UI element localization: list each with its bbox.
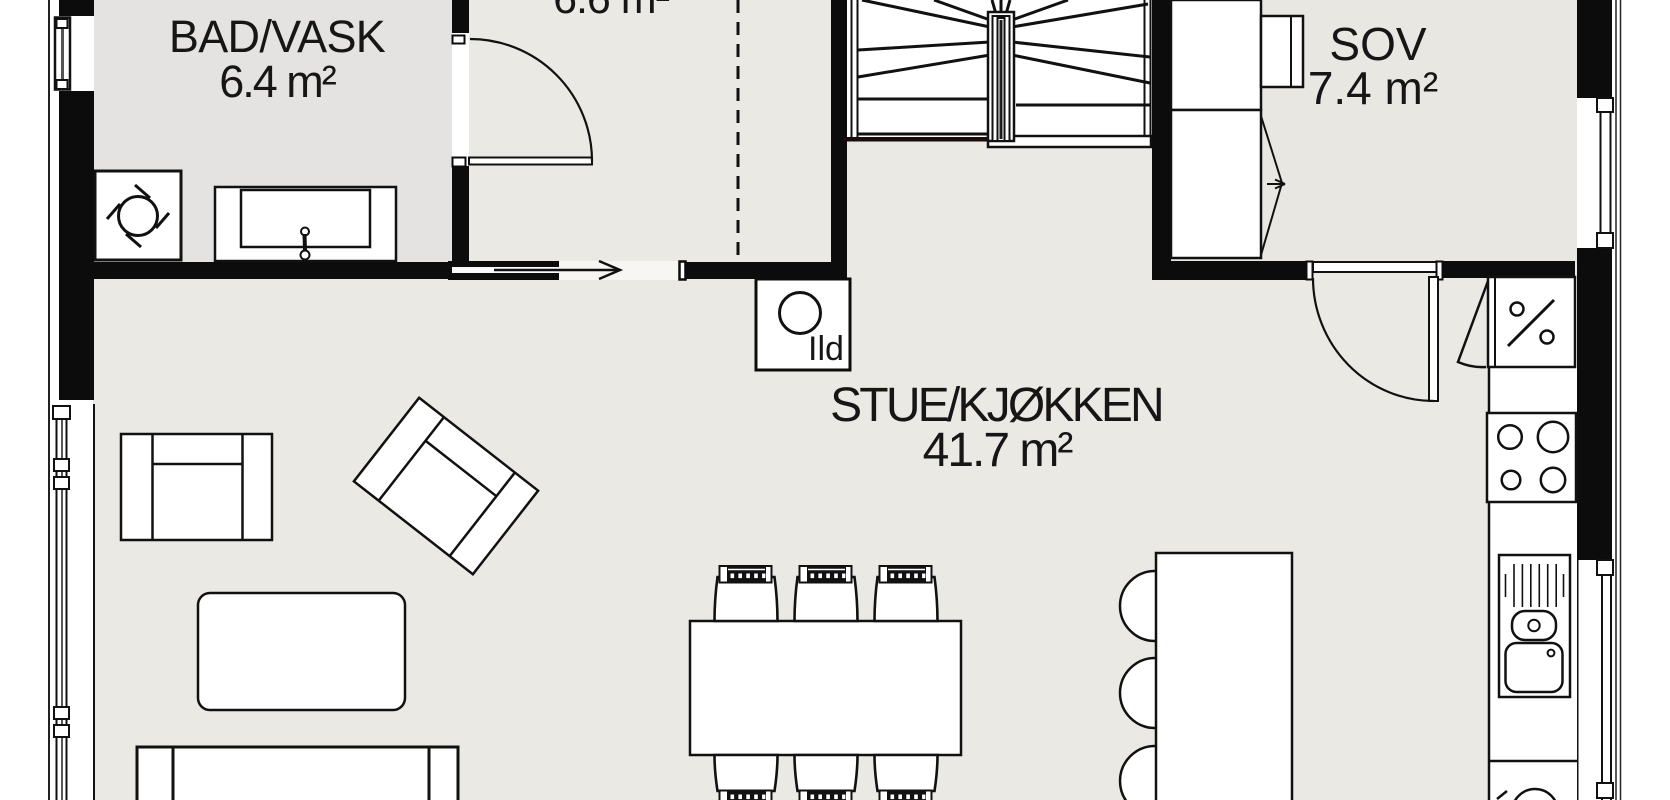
- svg-text:41.7 m²: 41.7 m²: [923, 424, 1074, 477]
- svg-text:6.4 m²: 6.4 m²: [219, 56, 337, 107]
- svg-text:7.4 m²: 7.4 m²: [1308, 62, 1438, 114]
- svg-text:BAD/VASK: BAD/VASK: [169, 11, 386, 62]
- svg-text:Ild: Ild: [808, 330, 844, 368]
- svg-text:6.6 m²: 6.6 m²: [553, 0, 670, 23]
